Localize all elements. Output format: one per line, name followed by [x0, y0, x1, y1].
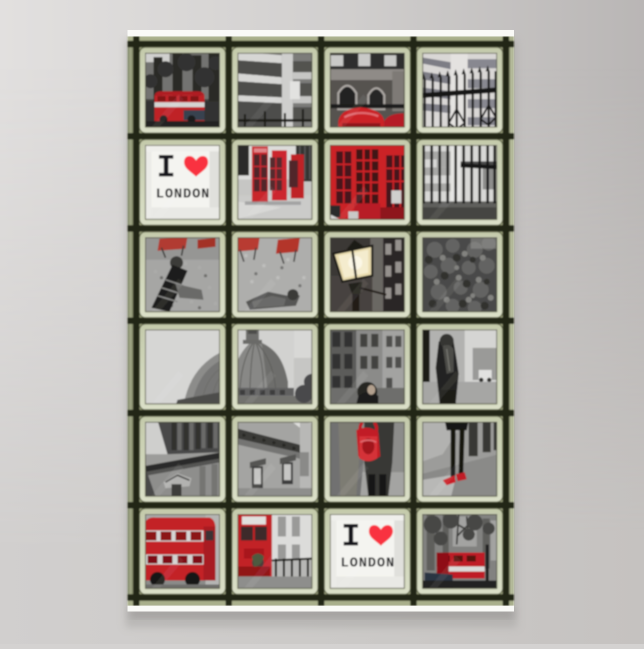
- svg-text:LONDON: LONDON: [156, 187, 210, 202]
- svg-text:LONDON: LONDON: [341, 557, 395, 572]
- svg-text:I: I: [157, 149, 176, 186]
- svg-text:I: I: [341, 519, 360, 556]
